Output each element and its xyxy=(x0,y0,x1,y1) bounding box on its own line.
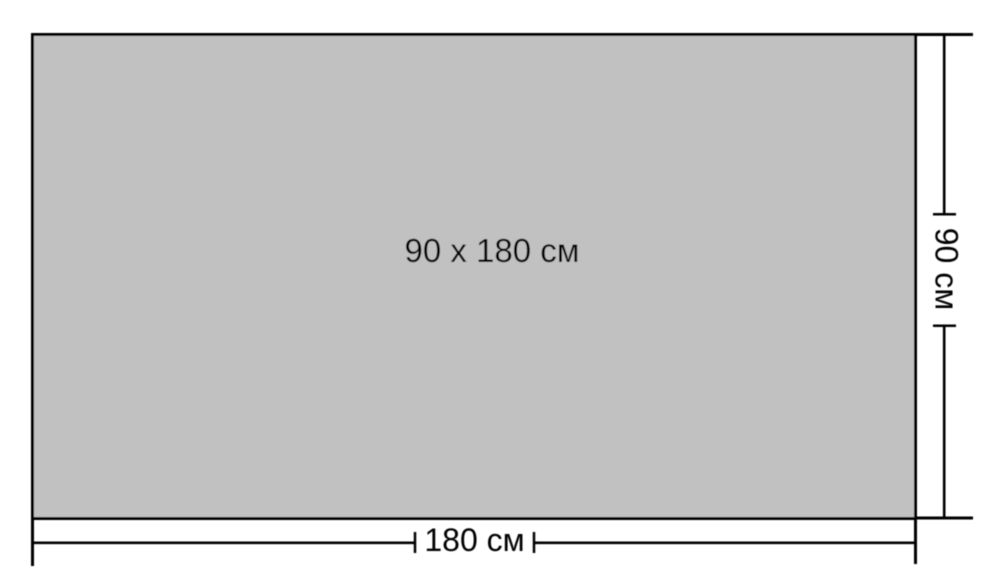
svg-text:90 см: 90 см xyxy=(929,228,965,310)
svg-text:90 x 180 см: 90 x 180 см xyxy=(405,232,580,269)
svg-text:180 см: 180 см xyxy=(424,522,524,558)
